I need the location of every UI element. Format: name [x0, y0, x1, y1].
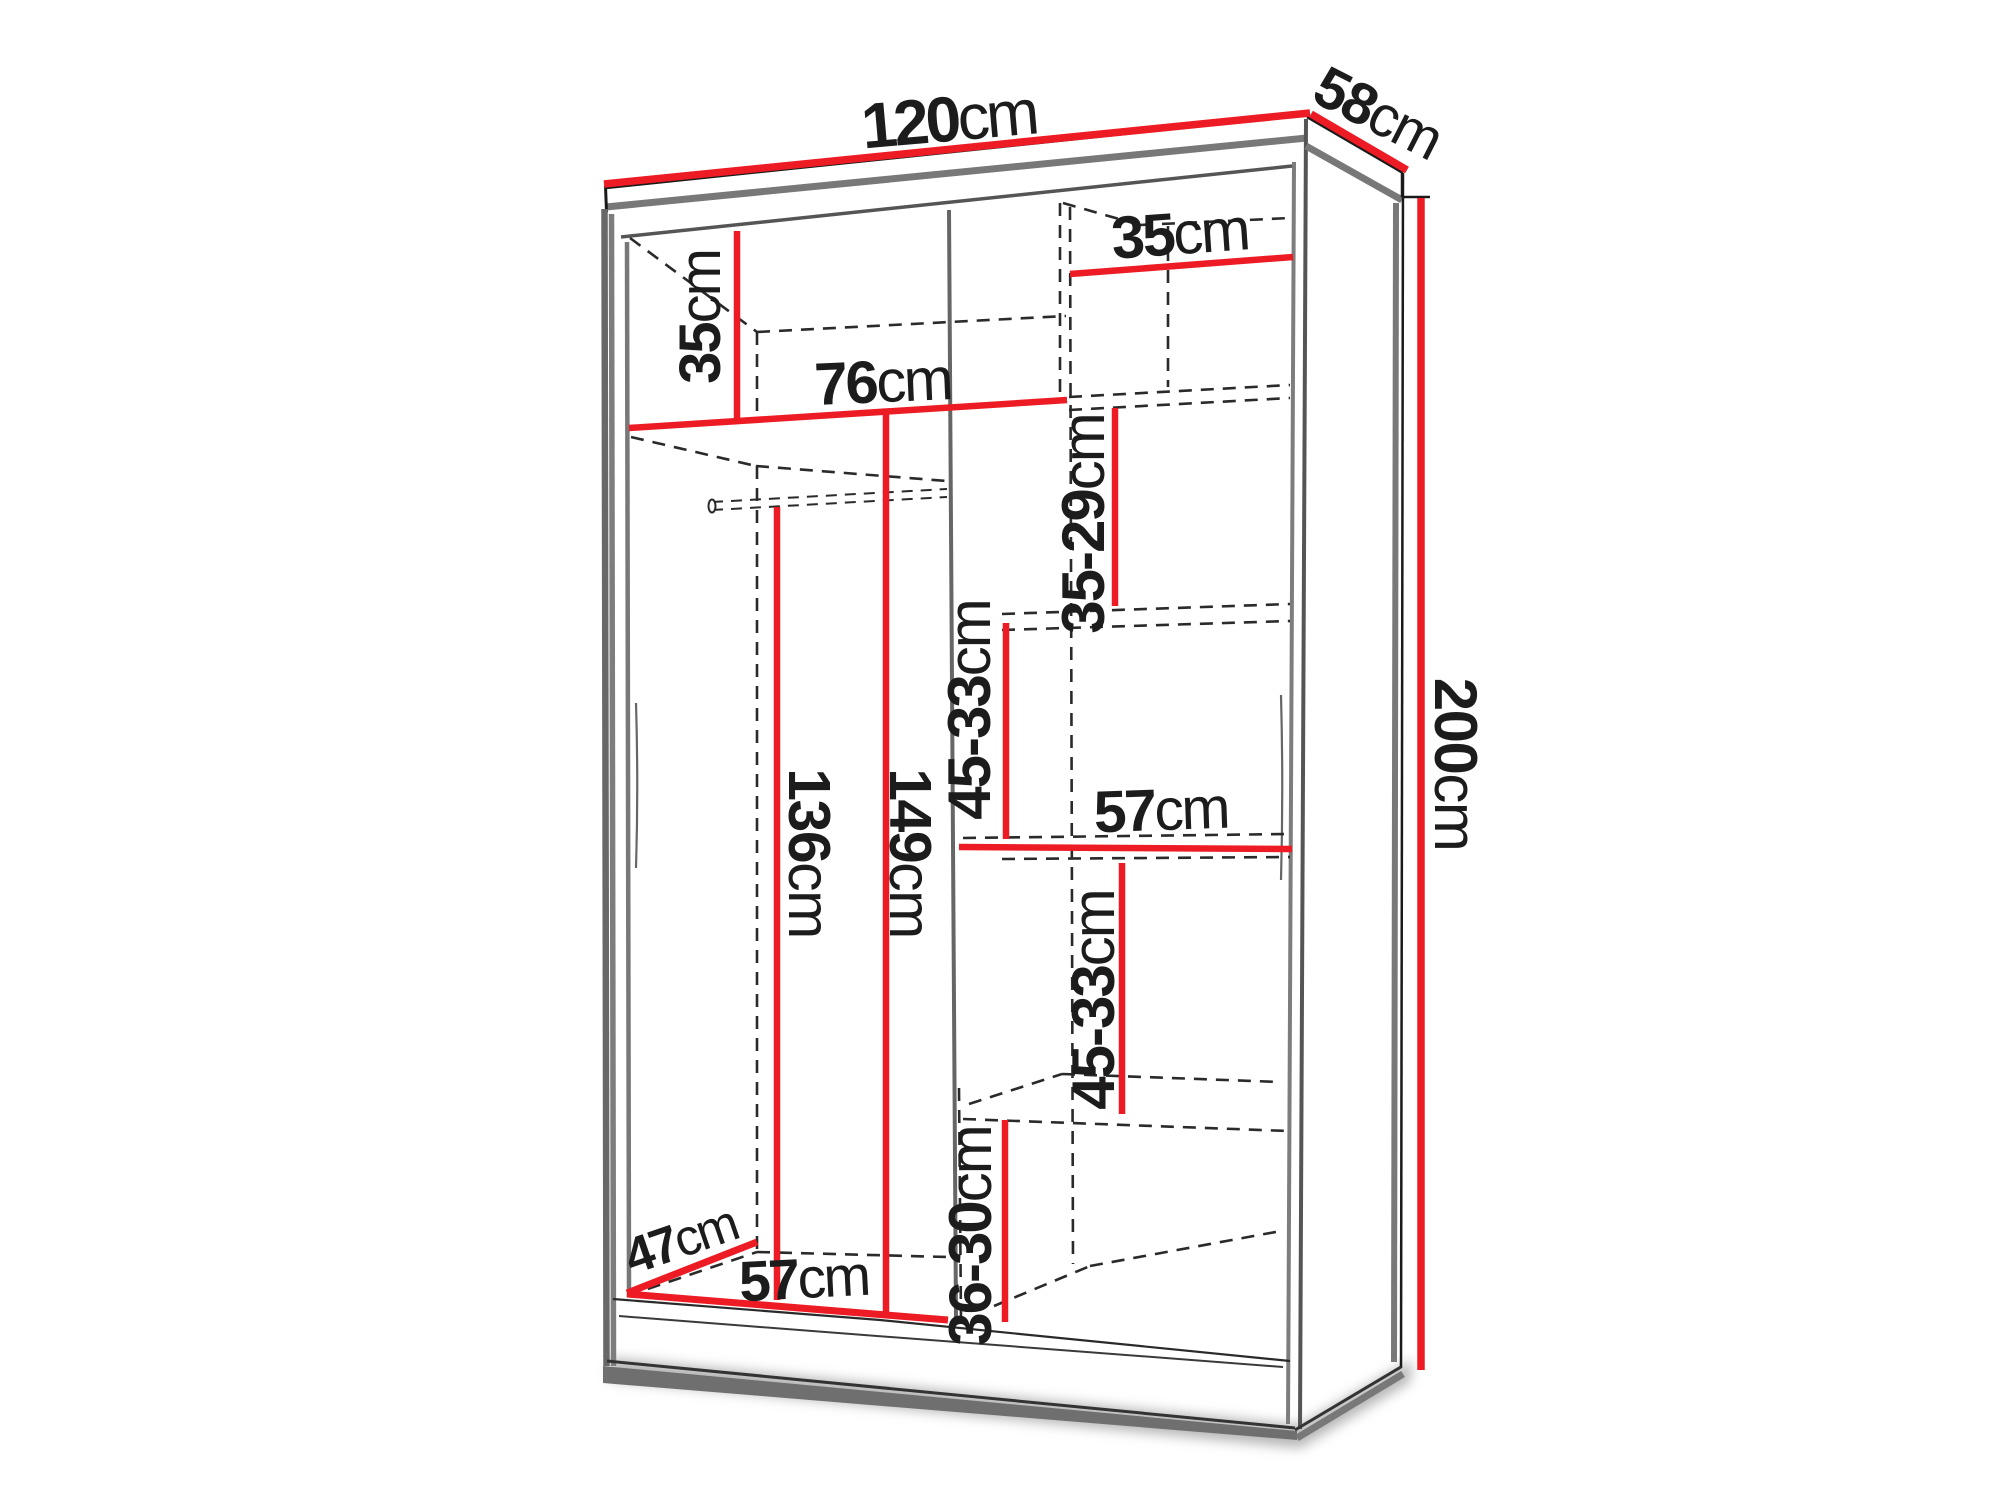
- svg-text:120cm: 120cm: [858, 75, 1038, 162]
- svg-text:45-33cm: 45-33cm: [1060, 890, 1127, 1109]
- svg-text:57cm: 57cm: [1093, 774, 1230, 845]
- svg-text:45-33cm: 45-33cm: [936, 600, 1003, 819]
- svg-text:36-30cm: 36-30cm: [937, 1126, 1004, 1345]
- svg-text:35cm: 35cm: [668, 250, 733, 384]
- svg-text:57cm: 57cm: [738, 1244, 871, 1315]
- svg-text:136cm: 136cm: [776, 768, 842, 938]
- svg-text:35-29cm: 35-29cm: [1050, 414, 1117, 633]
- svg-text:76cm: 76cm: [813, 345, 953, 418]
- svg-text:149cm: 149cm: [877, 768, 943, 938]
- svg-text:200cm: 200cm: [1422, 678, 1489, 851]
- svg-text:35cm: 35cm: [1109, 195, 1250, 271]
